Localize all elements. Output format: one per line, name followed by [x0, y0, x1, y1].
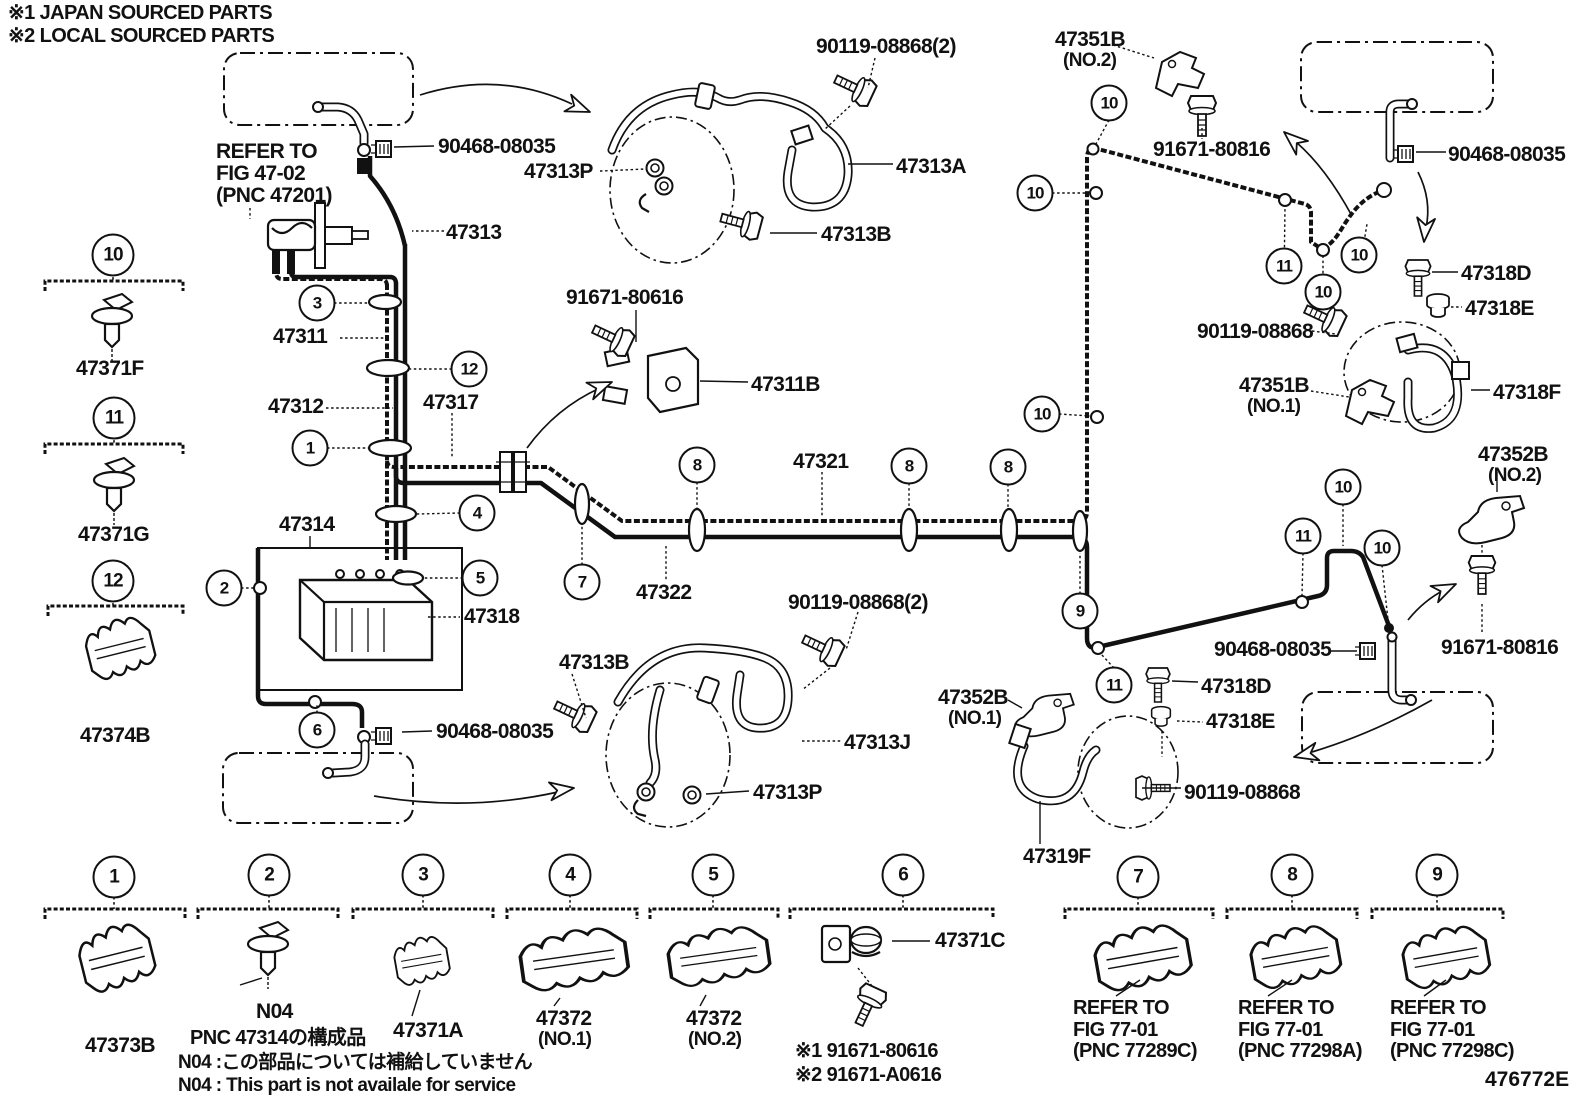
clip-47371f-icon	[92, 294, 132, 361]
label-clamp-90468-bottom-left: 90468-08035	[436, 721, 553, 742]
legend-circle-12: 12	[92, 560, 135, 603]
legend-circle-1: 1	[93, 856, 136, 899]
label-bolt-90119-right: 90119-08868	[1197, 321, 1313, 342]
callout-8b: 8	[891, 448, 928, 485]
legend-label-n04: N04	[256, 1001, 293, 1022]
legend-label-47372-no1: 47372	[536, 1008, 591, 1029]
callout-2: 2	[206, 570, 243, 607]
clamp-77298a-icon	[1248, 921, 1343, 990]
rear-tube-bottom-right	[1330, 633, 1416, 706]
legend-refer-7-2: FIG 77-01	[1073, 1020, 1158, 1040]
label-tube-47311: 47311	[273, 326, 327, 347]
callout-10c: 10	[1024, 396, 1061, 433]
master-cylinder-sketch	[268, 203, 368, 268]
legend-note-n04-en: N04 : This part is not availale for serv…	[178, 1076, 515, 1095]
legend-refer-9-2: FIG 77-01	[1390, 1020, 1475, 1040]
label-hose-47319f: 47319F	[1023, 846, 1091, 867]
callout-11b: 11	[1285, 518, 1322, 555]
label-tube-47322: 47322	[636, 582, 691, 603]
label-clamp-90468-top-left: 90468-08035	[438, 136, 555, 157]
label-tube-47318: 47318	[464, 606, 519, 627]
tube-clamp-markers	[367, 295, 1087, 585]
label-tube-47321: 47321	[793, 451, 848, 472]
callout-12: 12	[451, 351, 488, 388]
label-hose-47318f: 47318F	[1493, 382, 1561, 403]
label-grommet-47313p-top: 47313P	[524, 161, 593, 182]
label-bolt-90119-bottom-center: 90119-08868(2)	[788, 592, 928, 613]
label-bracket-47351b-no2: 47351B	[1055, 29, 1125, 50]
legend-refer-8-1: REFER TO	[1238, 998, 1334, 1018]
legend-label-47372-no2-variant: (NO.2)	[688, 1030, 741, 1049]
callout-1: 1	[292, 430, 329, 467]
body-reference-boxes	[223, 42, 1493, 823]
legend-refer-9-1: REFER TO	[1390, 998, 1486, 1018]
clamp-47371c-icon	[822, 926, 930, 1030]
label-refer-fig4702-1: REFER TO	[216, 141, 317, 162]
callout-10f: 10	[1325, 469, 1362, 506]
legend-circle-2: 2	[248, 854, 291, 897]
callout-7: 7	[564, 564, 601, 601]
callout-11c: 11	[1096, 667, 1133, 704]
legend-note-n04-jp: N04 :この部品については補給していません	[178, 1053, 532, 1072]
legend-label-47371f: 47371F	[76, 358, 144, 379]
callout-4: 4	[459, 495, 496, 532]
label-tube-47314: 47314	[279, 514, 334, 535]
label-nut-47318e-right: 47318E	[1465, 298, 1534, 319]
legend-circle-11: 11	[93, 397, 136, 440]
callout-10d: 10	[1305, 274, 1342, 311]
label-bracket-47352b-no1-no: (NO.1)	[948, 709, 1001, 728]
label-bolt-47313b-bottom: 47313B	[559, 652, 629, 673]
clamp-47372-no1-icon	[518, 924, 630, 993]
legend-circle-9: 9	[1416, 854, 1459, 897]
connector-47311b-sketch	[588, 310, 748, 412]
label-bracket-47352b-no2: 47352B	[1478, 444, 1548, 465]
flow-arrows	[374, 84, 1460, 803]
bracket-47352b-no2-sketch	[1459, 472, 1524, 633]
rear-tube-top-right	[1390, 99, 1446, 162]
label-bolt-90119-bottom-right: 90119-08868	[1184, 782, 1300, 803]
label-refer-fig4702-2: FIG 47-02	[216, 163, 305, 184]
legend-label-47372-no2: 47372	[686, 1008, 741, 1029]
callout-5: 5	[462, 560, 499, 597]
clamp-47374b-icon	[82, 613, 159, 682]
label-bolt-47313b-top: 47313B	[821, 224, 891, 245]
label-connector-47311b: 47311B	[751, 374, 820, 395]
callout-11a: 11	[1266, 248, 1303, 285]
clip-47371g-icon	[94, 458, 134, 525]
label-bolt-90119-top: 90119-08868(2)	[816, 36, 956, 57]
legend-circle-7: 7	[1117, 856, 1160, 899]
label-hose-47313j: 47313J	[844, 732, 910, 753]
legend-label-47374b: 47374B	[80, 725, 150, 746]
connector-47317-sketch	[496, 452, 530, 492]
brake-tube-front-bundle	[272, 156, 405, 560]
legend-refer-8-3: (PNC 77298A)	[1238, 1041, 1362, 1061]
callout-8c: 8	[990, 449, 1027, 486]
legend-circle-3: 3	[402, 854, 445, 897]
callout-10e: 10	[1341, 237, 1378, 274]
label-bracket-47351b-no1-no: (NO.1)	[1247, 397, 1300, 416]
clamp-47371a-icon	[392, 934, 452, 987]
callout-6: 6	[299, 712, 336, 749]
clip-n04-icon	[248, 922, 288, 989]
hose-47313a-sketch	[600, 58, 893, 242]
clamp-47373b-icon	[75, 919, 159, 995]
legend-refer-8-2: FIG 77-01	[1238, 1020, 1323, 1040]
legend-refer-7-1: REFER TO	[1073, 998, 1169, 1018]
callout-9: 9	[1062, 593, 1099, 630]
callout-10g: 10	[1364, 530, 1401, 567]
label-clamp-90468-top-right: 90468-08035	[1448, 144, 1565, 165]
callout-3: 3	[299, 285, 336, 322]
legend-label-47371a: 47371A	[393, 1020, 463, 1041]
callout-8a: 8	[679, 447, 716, 484]
bracket-47351b-no2-sketch	[1113, 45, 1216, 139]
legend-brackets	[45, 272, 1503, 919]
label-refer-fig4702-3: (PNC 47201)	[216, 185, 332, 206]
label-grommet-47313p-bottom: 47313P	[753, 782, 822, 803]
abs-actuator-sketch	[254, 536, 462, 778]
clamp-47372-no2-icon	[666, 923, 772, 989]
figure-code: 476772E	[1485, 1069, 1569, 1090]
legend-circle-4: 4	[549, 854, 592, 897]
legend-circle-6: 6	[882, 854, 925, 897]
legend-label-47372-no1-variant: (NO.1)	[538, 1030, 591, 1049]
label-bolt-47318d-right: 47318D	[1461, 263, 1531, 284]
label-tube-47312: 47312	[268, 396, 323, 417]
label-nut-47318e-bottom: 47318E	[1206, 711, 1275, 732]
label-bolt-91671-80816-bottom: 91671-80816	[1441, 637, 1558, 658]
legend-label-47373b: 47373B	[85, 1035, 155, 1056]
callout-10b: 10	[1017, 175, 1054, 212]
label-bolt-47318d-bottom: 47318D	[1201, 676, 1271, 697]
legend-label-91671-80616-alt: ※1 91671-80616	[795, 1041, 938, 1061]
legend-label-91671-a0616-alt: ※2 91671-A0616	[795, 1065, 941, 1085]
label-connector-47317: 47317	[423, 392, 478, 413]
legend-label-47371g: 47371G	[78, 524, 149, 545]
legend-circle-10: 10	[92, 234, 135, 277]
label-bracket-47352b-no2-no: (NO.2)	[1488, 466, 1541, 485]
callout-10a: 10	[1091, 85, 1128, 122]
legend-circle-8: 8	[1271, 854, 1314, 897]
label-bolt-91671-80616: 91671-80616	[566, 287, 683, 308]
label-bracket-47351b-no2-no: (NO.2)	[1063, 51, 1116, 70]
note-local-sourced: ※2 LOCAL SOURCED PARTS	[8, 26, 274, 46]
note-japan-sourced: ※1 JAPAN SOURCED PARTS	[8, 3, 272, 23]
label-tube-47313: 47313	[446, 222, 501, 243]
legend-refer-7-3: (PNC 77289C)	[1073, 1041, 1197, 1061]
legend-label-47371c: 47371C	[935, 930, 1005, 951]
brake-tube-parts-diagram: ※1 JAPAN SOURCED PARTS ※2 LOCAL SOURCED …	[0, 0, 1592, 1099]
label-bracket-47351b-no1: 47351B	[1239, 375, 1309, 396]
legend-note-pnc: PNC 47314の構成品	[190, 1028, 366, 1048]
label-hose-47313a: 47313A	[896, 156, 966, 177]
reservoir-tube-top-left	[313, 102, 434, 174]
clamp-77289c-icon	[1092, 920, 1194, 993]
label-bolt-91671-80816-top: 91671-80816	[1153, 139, 1270, 160]
label-bracket-47352b-no1: 47352B	[938, 687, 1008, 708]
legend-refer-9-3: (PNC 77298C)	[1390, 1041, 1514, 1061]
legend-circle-5: 5	[692, 854, 735, 897]
label-clamp-90468-bottom-right: 90468-08035	[1214, 639, 1331, 660]
